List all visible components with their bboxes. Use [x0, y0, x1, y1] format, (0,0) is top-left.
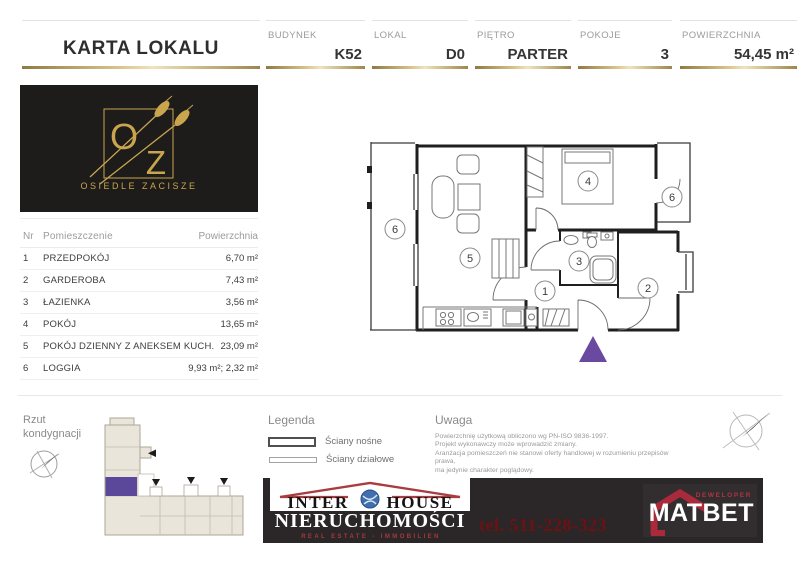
row-area: 9,93 m²; 2,32 m² [188, 363, 258, 374]
table-row: 3 ŁAZIENKA 3,56 m² [20, 292, 258, 314]
svg-text:INTER: INTER [287, 493, 348, 511]
svg-text:5: 5 [467, 253, 473, 265]
highlighted-unit [106, 477, 138, 496]
table-row: 6 LOGGIA 9,93 m²; 2,32 m² [20, 358, 258, 380]
legend-item-partition: Ściany działowe [268, 454, 418, 465]
row-area: 13,65 m² [221, 319, 259, 330]
estate-name: OSIEDLE ZACISZE [80, 181, 197, 191]
svg-text:Z: Z [146, 144, 166, 181]
page-title: KARTA LOKALU [22, 38, 260, 60]
gold-underline [22, 66, 260, 69]
row-area: 23,09 m² [221, 341, 259, 352]
uwaga-line: Aranżacja pomieszczeń nie stanowi oferty… [435, 450, 675, 467]
field-value: 3 [661, 46, 669, 63]
osiedle-zacisze-logo-icon: O Z OSIEDLE ZACISZE [20, 85, 258, 212]
col-header-name: Pomieszczenie [43, 231, 199, 242]
rooms-table-header: Nr Pomieszczenie Powierzchnia [20, 219, 258, 248]
gold-underline [266, 66, 365, 69]
svg-text:1: 1 [542, 286, 548, 298]
row-area: 6,70 m² [226, 253, 258, 264]
svg-text:3: 3 [576, 256, 582, 268]
field-value: 54,45 m² [734, 46, 794, 63]
row-nr: 2 [20, 275, 43, 286]
gold-underline [578, 66, 672, 69]
row-nr: 5 [20, 341, 43, 352]
gold-underline [475, 66, 571, 69]
matbet-tagline: DEWELOPER [696, 492, 752, 499]
header-title-block: KARTA LOKALU [22, 20, 260, 69]
matbet-name: MATBET [649, 499, 754, 528]
field-label: PIĘTRO [477, 30, 515, 41]
building-overview [24, 416, 248, 540]
phone-number: tel. 511-228-323 [479, 515, 607, 536]
row-nr: 3 [20, 297, 43, 308]
field-value: D0 [446, 46, 465, 63]
header-field-lokal: LOKAL D0 [372, 20, 468, 69]
row-name: GARDEROBA [43, 275, 226, 286]
interhouse-tagline: REAL ESTATE - IMMOBILIEN [265, 534, 477, 540]
uwaga-line: Powierzchnię użytkową obliczono wg PN-IS… [435, 433, 675, 441]
kitchen-appliances [423, 307, 569, 330]
svg-text:2: 2 [645, 283, 651, 295]
uwaga-line: Projekt wykonawczy może wprowadzić zmian… [435, 441, 675, 449]
partition-wall-symbol [269, 457, 317, 463]
field-value: PARTER [507, 46, 568, 63]
gold-underline [680, 66, 797, 69]
entrance-arrows [148, 450, 228, 487]
building-outline [105, 418, 243, 535]
section-divider [18, 395, 782, 396]
load-bearing-walls [416, 144, 679, 331]
row-name: PRZEDPOKÓJ [43, 253, 226, 264]
row-name: LOGGIA [43, 363, 188, 374]
row-name: ŁAZIENKA [43, 297, 226, 308]
matbet-logo: DEWELOPER MATBET [643, 484, 757, 537]
row-name: POKÓJ DZIENNY Z ANEKSEM KUCH. [43, 341, 221, 352]
floor-plan: 6 5 4 6 3 1 2 [355, 115, 705, 380]
karta-lokalu-page: KARTA LOKALU BUDYNEK K52 LOKAL D0 PIĘTRO… [0, 0, 800, 566]
col-header-area: Powierzchnia [199, 231, 258, 242]
svg-text:6: 6 [669, 192, 675, 204]
footer-banner: INTER HOUSE NIERUCHOMOŚCI REAL ESTATE - … [263, 478, 763, 543]
compass-left-icon [30, 451, 60, 478]
row-name: POKÓJ [43, 319, 221, 330]
legend-item-label: Ściany nośne [325, 436, 382, 447]
legend-title: Legenda [268, 413, 418, 427]
header-field-powierzchnia: POWIERZCHNIA 54,45 m² [680, 20, 797, 69]
interhouse-logo: INTER HOUSE [270, 478, 470, 511]
table-row: 5 POKÓJ DZIENNY Z ANEKSEM KUCH. 23,09 m² [20, 336, 258, 358]
field-label: BUDYNEK [268, 30, 317, 41]
svg-text:HOUSE: HOUSE [386, 493, 453, 511]
interhouse-subtitle: NIERUCHOMOŚCI [263, 510, 477, 533]
row-area: 3,56 m² [226, 297, 258, 308]
header-field-budynek: BUDYNEK K52 [266, 20, 365, 69]
header-field-pietro: PIĘTRO PARTER [475, 20, 571, 69]
row-area: 7,43 m² [226, 275, 258, 286]
field-label: LOKAL [374, 30, 407, 41]
field-value: K52 [334, 46, 362, 63]
svg-text:4: 4 [585, 176, 591, 188]
rooms-table: Nr Pomieszczenie Powierzchnia 1 PRZEDPOK… [20, 218, 258, 380]
table-row: 2 GARDEROBA 7,43 m² [20, 270, 258, 292]
load-bearing-wall-symbol [268, 437, 316, 447]
field-label: POKOJE [580, 30, 621, 41]
uwaga-title: Uwaga [435, 413, 675, 427]
uwaga-line: ma jedynie charakter poglądowy. [435, 467, 675, 475]
svg-text:6: 6 [392, 224, 398, 236]
uwaga-note: Uwaga Powierzchnię użytkową obliczono wg… [435, 413, 675, 475]
table-row: 4 POKÓJ 13,65 m² [20, 314, 258, 336]
svg-text:O: O [110, 116, 138, 157]
row-nr: 1 [20, 253, 43, 264]
gold-underline [372, 66, 468, 69]
legend-item-label: Ściany działowe [326, 454, 394, 465]
header-field-pokoje: POKOJE 3 [578, 20, 672, 69]
field-label: POWIERZCHNIA [682, 30, 761, 41]
legend: Legenda Ściany nośne Ściany działowe [268, 413, 418, 472]
estate-logo-box: O Z OSIEDLE ZACISZE [20, 85, 258, 212]
entrance-arrow-icon [579, 336, 607, 362]
row-nr: 4 [20, 319, 43, 330]
col-header-nr: Nr [20, 231, 43, 242]
row-nr: 6 [20, 363, 43, 374]
legend-item-load-bearing: Ściany nośne [268, 436, 418, 447]
table-row: 1 PRZEDPOKÓJ 6,70 m² [20, 248, 258, 270]
interhouse-logo-icon: INTER HOUSE [270, 478, 470, 511]
compass-right-icon [718, 405, 778, 461]
